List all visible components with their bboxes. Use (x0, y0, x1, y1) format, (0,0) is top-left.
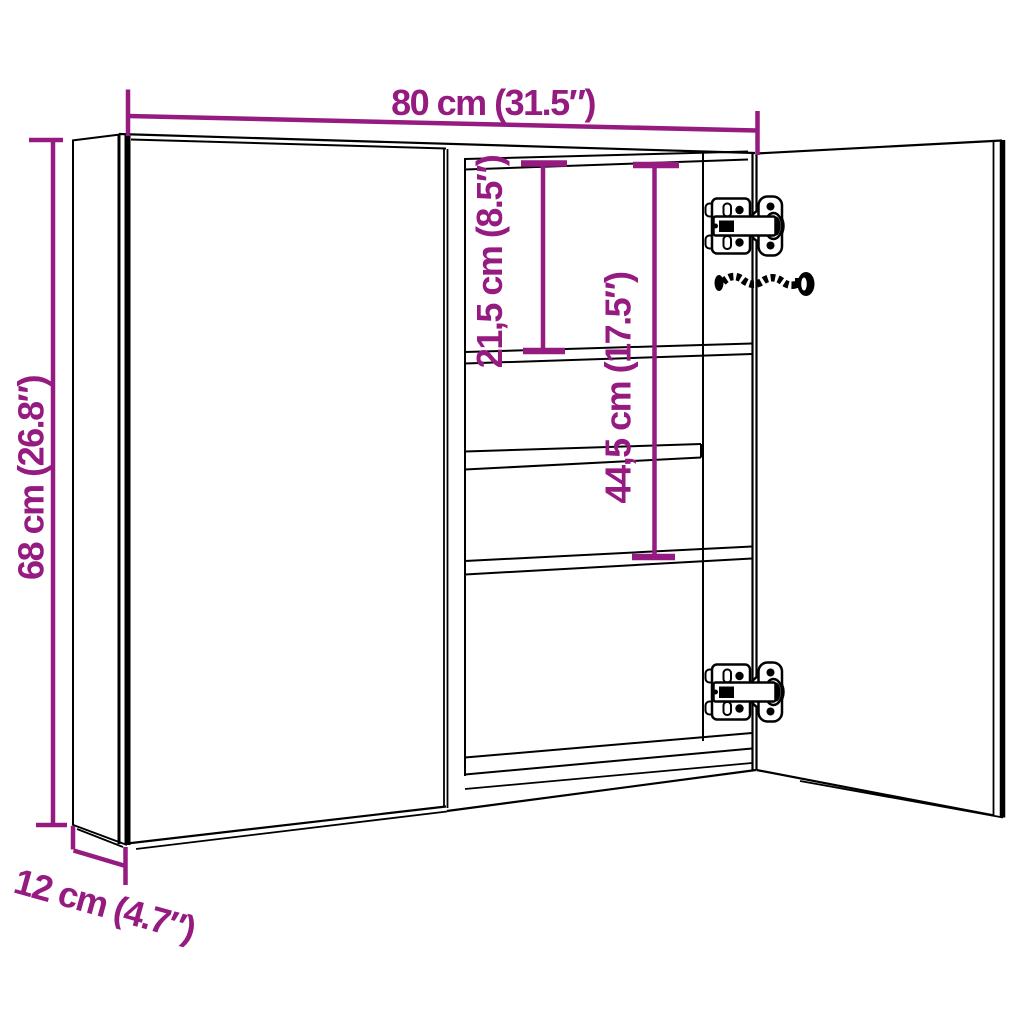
canvas-background (0, 0, 1024, 1024)
hinge-bottom-icon (706, 663, 784, 722)
cord-end-cap (715, 275, 724, 291)
hinge-top-icon (706, 197, 784, 256)
inner-top-shelf-dimension-label: 21,5 cm (8.5″) (469, 155, 510, 368)
dimension-diagram: 80 cm (31.5″) 68 cm (26.8″) 21,5 cm (8.5… (0, 0, 1024, 1024)
cabinet-diagram-canvas: 80 cm (31.5″) 68 cm (26.8″) 21,5 cm (8.5… (0, 0, 1024, 1024)
inner-span-dimension-label: 44,5 cm (17.5″) (598, 272, 639, 503)
height-dimension-label: 68 cm (26.8″) (11, 376, 52, 580)
width-dimension-label: 80 cm (31.5″) (391, 82, 595, 123)
cord-plug-highlight (801, 278, 807, 291)
